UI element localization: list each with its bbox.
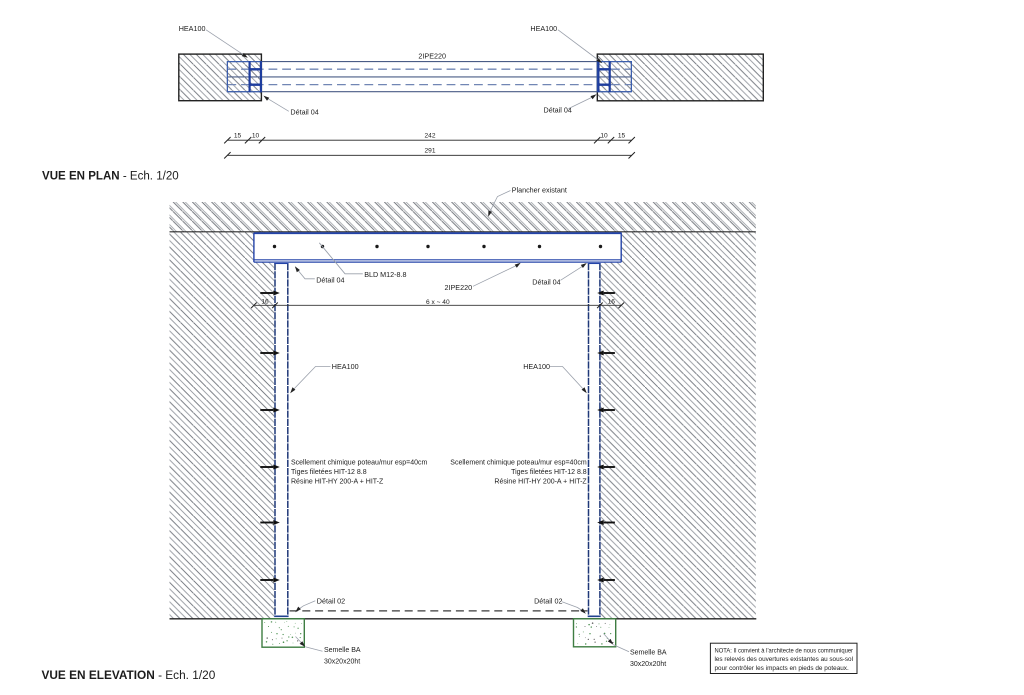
svg-text:Résine HIT-HY 200-A + HIT-Z: Résine HIT-HY 200-A + HIT-Z: [494, 478, 587, 485]
svg-text:Détail 04: Détail 04: [290, 108, 318, 117]
svg-text:HEA100: HEA100: [332, 362, 359, 371]
svg-text:16: 16: [608, 299, 616, 306]
svg-text:242: 242: [424, 133, 435, 140]
svg-text:Détail 02: Détail 02: [317, 597, 345, 606]
svg-text:HEA100: HEA100: [530, 24, 557, 33]
svg-text:15: 15: [234, 133, 242, 140]
svg-text:HEA100: HEA100: [523, 362, 550, 371]
svg-text:10: 10: [600, 133, 608, 140]
svg-text:BLD M12-8.8: BLD M12-8.8: [364, 270, 406, 279]
svg-text:Tiges filetées HIT-12 8.8: Tiges filetées HIT-12 8.8: [511, 469, 587, 476]
svg-text:Semelle BA: Semelle BA: [324, 647, 361, 654]
svg-text:30x20x20ht: 30x20x20ht: [630, 661, 666, 668]
svg-text:Semelle BA: Semelle BA: [630, 650, 667, 657]
svg-text:Scellement chimique poteau/mur: Scellement chimique poteau/mur esp=40cm: [291, 459, 428, 466]
svg-text:VUE EN PLAN - Ech. 1/20: VUE EN PLAN - Ech. 1/20: [42, 169, 179, 183]
svg-text:Détail 02: Détail 02: [534, 597, 562, 606]
svg-text:10: 10: [252, 133, 260, 140]
svg-text:16: 16: [261, 299, 269, 306]
svg-text:30x20x20ht: 30x20x20ht: [324, 658, 360, 665]
svg-text:6 x ~ 40: 6 x ~ 40: [426, 299, 450, 306]
svg-text:HEA100: HEA100: [179, 24, 206, 33]
svg-text:Résine HIT-HY 200-A + HIT-Z: Résine HIT-HY 200-A + HIT-Z: [291, 478, 384, 485]
svg-text:291: 291: [424, 148, 435, 155]
svg-text:15: 15: [618, 133, 626, 140]
svg-text:VUE EN ELEVATION - Ech. 1/20: VUE EN ELEVATION - Ech. 1/20: [42, 668, 216, 682]
svg-text:NOTA: Il convient à l'architec: NOTA: Il convient à l'architecte de nous…: [715, 647, 854, 654]
svg-text:les relevés des ouvertures exi: les relevés des ouvertures existantes au…: [715, 656, 854, 663]
svg-text:Détail 04: Détail 04: [544, 105, 572, 114]
svg-text:Plancher existant: Plancher existant: [512, 186, 567, 195]
svg-text:Scellement chimique poteau/mur: Scellement chimique poteau/mur esp=40cm: [450, 459, 587, 466]
svg-text:Tiges filetées HIT-12 8.8: Tiges filetées HIT-12 8.8: [291, 469, 367, 476]
svg-text:pour contrôler les impacts en: pour contrôler les impacts en pieds de p…: [715, 665, 850, 672]
svg-text:Détail 04: Détail 04: [316, 275, 344, 284]
svg-text:2IPE220: 2IPE220: [418, 52, 446, 61]
svg-text:Détail 04: Détail 04: [532, 278, 560, 287]
svg-text:2IPE220: 2IPE220: [445, 283, 473, 292]
